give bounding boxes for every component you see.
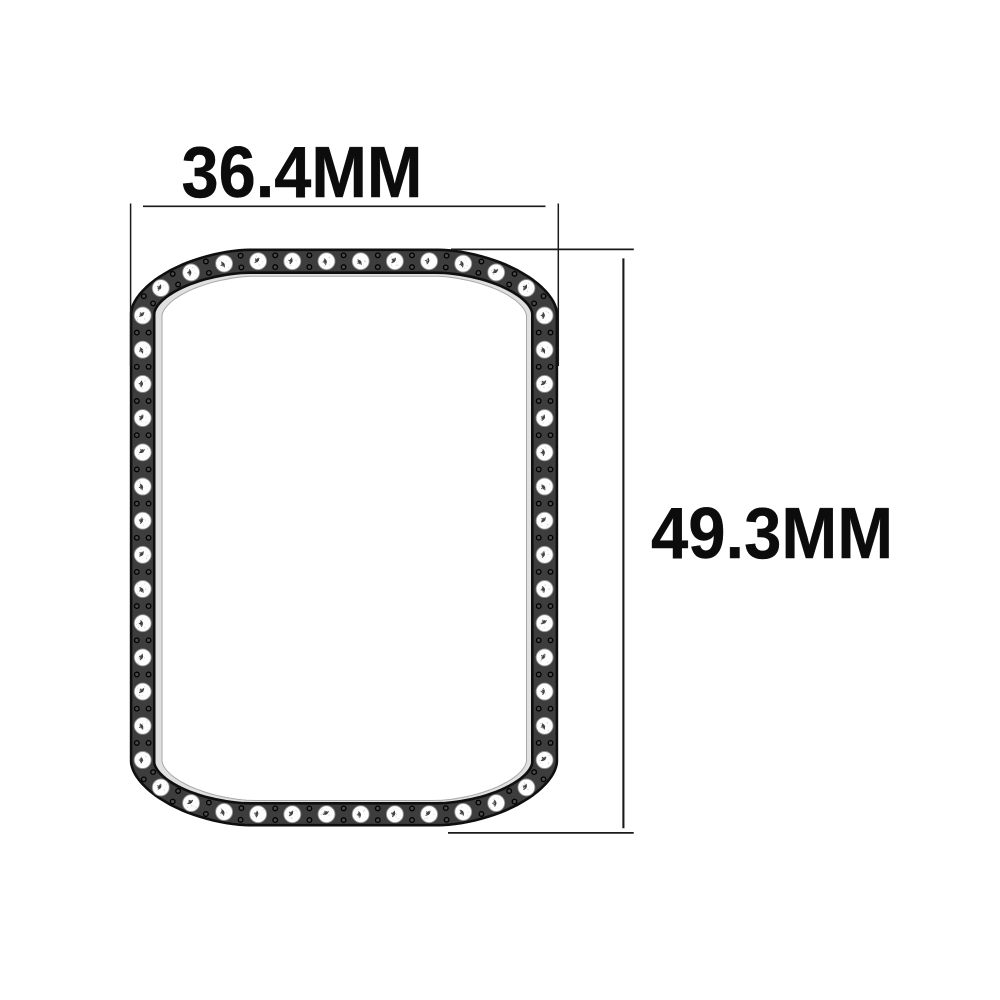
svg-text:49.3MM: 49.3MM [651, 494, 893, 574]
svg-text:36.4MM: 36.4MM [182, 133, 423, 213]
